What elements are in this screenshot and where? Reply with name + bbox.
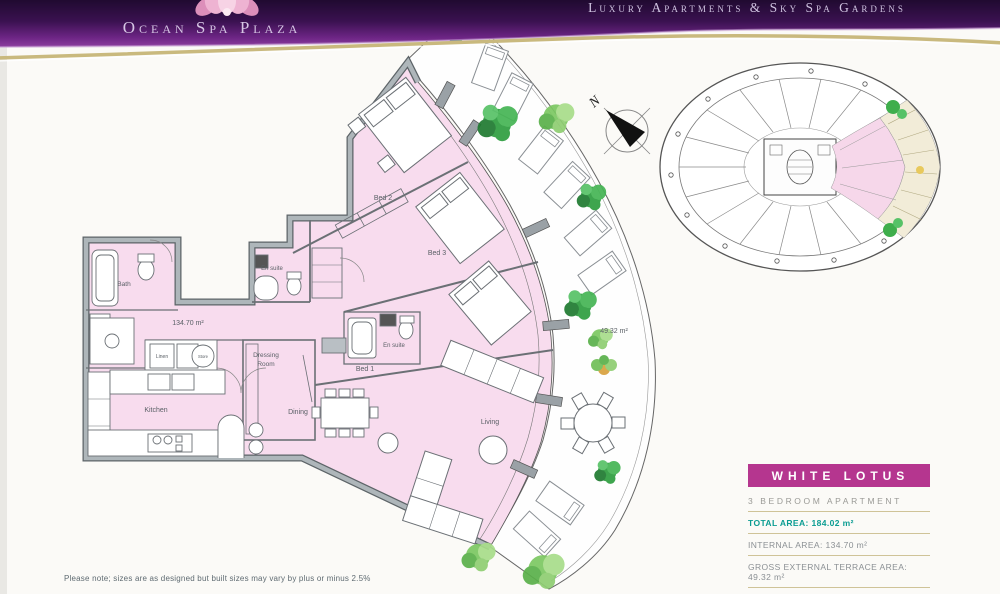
room-label-dressing-2: Room [257, 361, 274, 368]
room-label-bed3: Bed 3 [428, 250, 446, 257]
disclaimer-note: Please note; sizes are as designed but b… [64, 574, 371, 583]
room-label-bed1: Bed 1 [356, 366, 374, 373]
room-label-linen: Linen [156, 354, 168, 360]
building-key-plan [660, 63, 940, 271]
room-label-bed2: Bed 2 [374, 195, 392, 202]
internal-area-label: 134.70 m² [172, 320, 204, 327]
north-label: N [586, 93, 604, 112]
terrace-area-label: 49.32 m² [600, 328, 628, 335]
apartment-type: 3 BEDROOM APARTMENT [748, 496, 930, 512]
internal-area-row: INTERNAL AREA: 134.70 m² [748, 534, 930, 556]
north-arrow: N [586, 93, 650, 154]
terrace-area-row: GROSS EXTERNAL TERRACE AREA: 49.32 m² [748, 556, 930, 588]
info-panel: WHITE LOTUS 3 BEDROOM APARTMENT TOTAL AR… [748, 464, 930, 594]
total-area-row: TOTAL AREA: 184.02 m² [748, 512, 930, 534]
room-label-store: Store [198, 354, 209, 359]
apartment-name: WHITE LOTUS [748, 464, 930, 487]
room-label-dining: Dining [288, 409, 308, 416]
room-label-ensuite-bed2: En suite [261, 266, 283, 272]
room-label-living: Living [481, 419, 499, 426]
room-label-dressing-1: Dressing [253, 352, 279, 359]
tagline: Luxury Apartments & Sky Spa Gardens [588, 0, 906, 15]
website-url: www.oceanspaplaza.com [748, 588, 930, 594]
room-label-bath: Bath [117, 281, 131, 288]
brochure-page: Bed 2 Bed 3 Bed 1 En suite En suite Bath… [0, 0, 1000, 594]
header-banner: Ocean Spa Plaza Luxury Apartments & Sky … [0, 0, 1000, 70]
brand-title: Ocean Spa Plaza [123, 18, 302, 37]
room-label-ensuite-bed1: En suite [383, 343, 405, 349]
room-label-kitchen: Kitchen [144, 407, 167, 414]
